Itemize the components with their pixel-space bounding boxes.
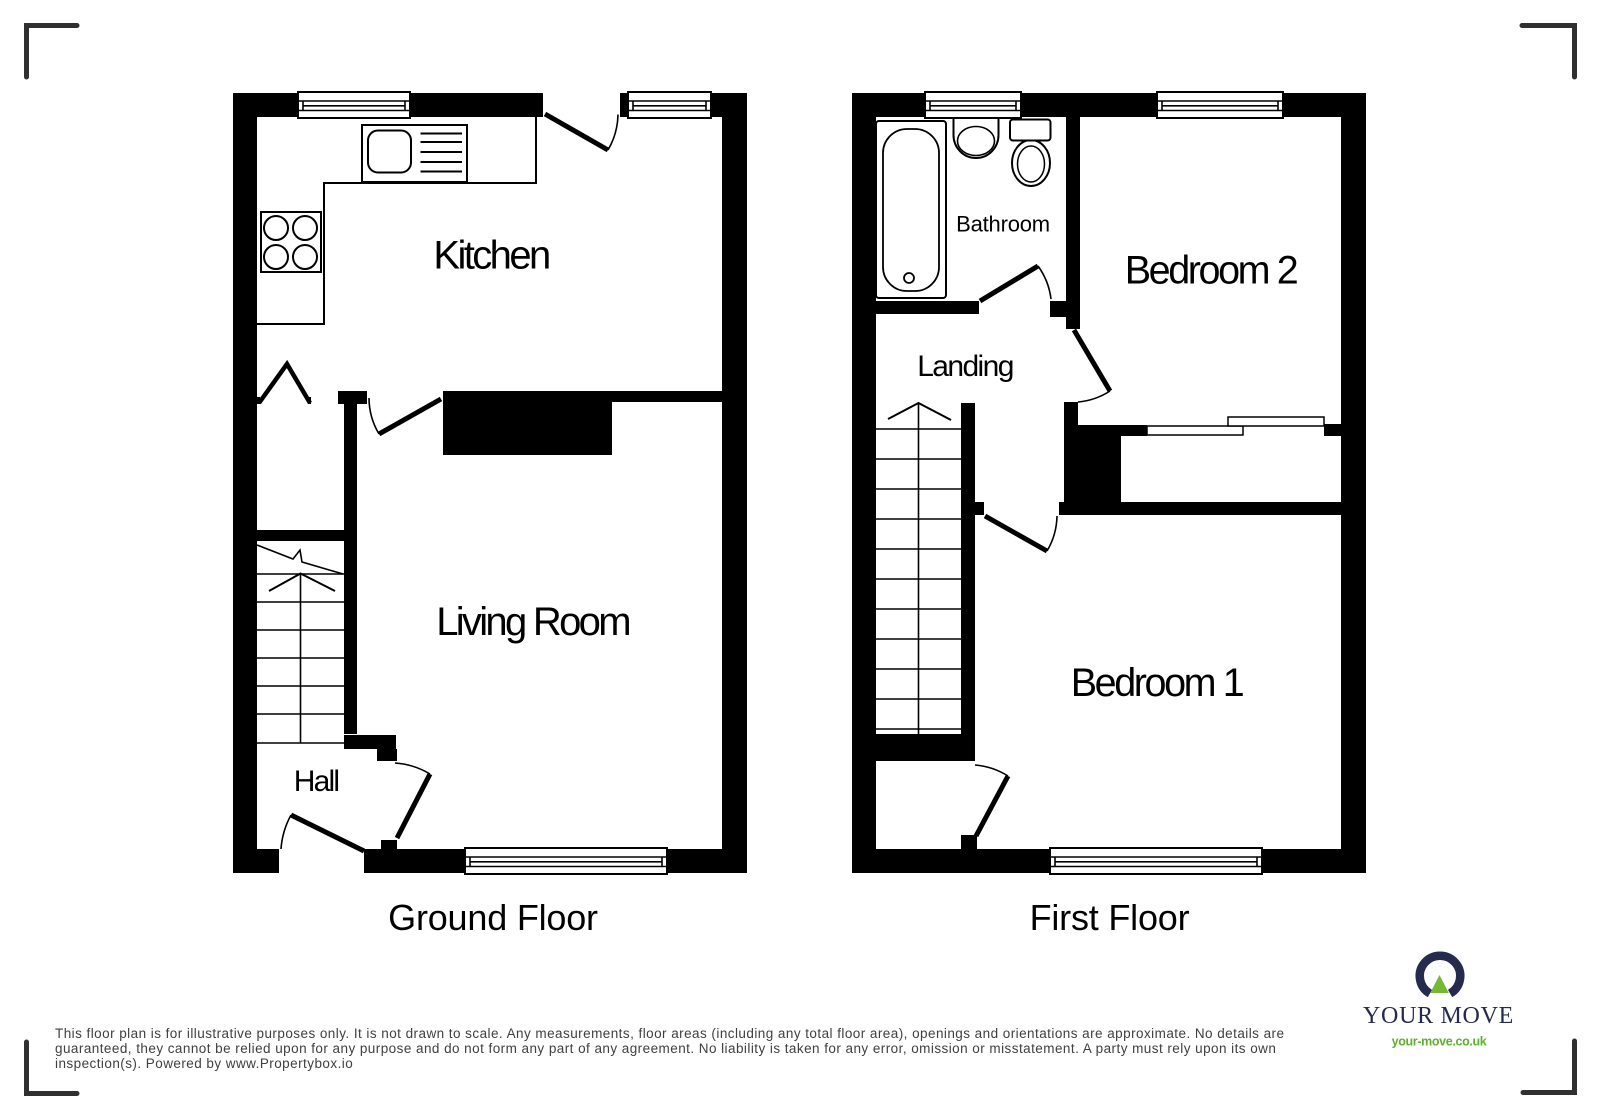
svg-text:First Floor: First Floor <box>1030 897 1190 938</box>
svg-text:Bedroom 1: Bedroom 1 <box>1071 661 1244 705</box>
svg-text:Ground Floor: Ground Floor <box>388 897 598 938</box>
svg-text:Landing: Landing <box>917 350 1013 383</box>
svg-text:inspection(s). Powered by www.: inspection(s). Powered by www.Propertybo… <box>55 1056 353 1071</box>
svg-text:Hall: Hall <box>294 765 339 798</box>
svg-text:Kitchen: Kitchen <box>433 234 549 278</box>
svg-text:Bedroom 2: Bedroom 2 <box>1125 249 1297 293</box>
svg-text:your-move.co.uk: your-move.co.uk <box>1392 1035 1487 1049</box>
svg-text:Bathroom: Bathroom <box>956 212 1050 237</box>
svg-text:Living Room: Living Room <box>436 600 629 644</box>
svg-text:YOUR MOVE: YOUR MOVE <box>1363 1003 1514 1029</box>
svg-text:guaranteed, they cannot be rel: guaranteed, they cannot be relied upon f… <box>55 1041 1276 1056</box>
svg-text:This floor plan is for illustr: This floor plan is for illustrative purp… <box>55 1026 1284 1041</box>
